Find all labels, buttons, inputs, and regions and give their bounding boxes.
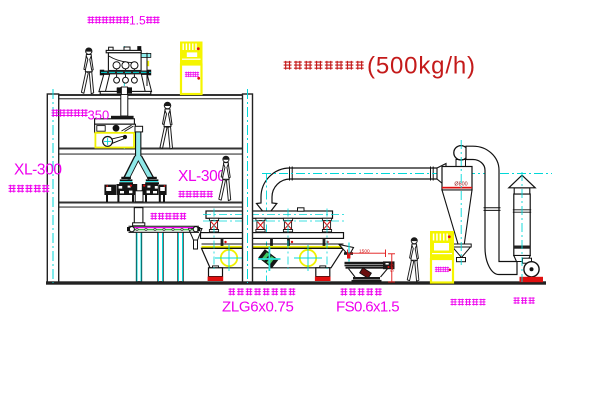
svg-text:1.5: 1.5 xyxy=(129,14,146,28)
svg-text:1500: 1500 xyxy=(359,248,370,254)
svg-text:XL-300: XL-300 xyxy=(14,162,62,179)
svg-text:ZLG6x0.75: ZLG6x0.75 xyxy=(222,299,294,316)
svg-text:545: 545 xyxy=(390,264,396,272)
svg-text:350: 350 xyxy=(88,108,110,123)
svg-text:(500kg/h): (500kg/h) xyxy=(367,53,475,80)
svg-text:XL-300: XL-300 xyxy=(178,168,226,185)
svg-text:FS0.6x1.5: FS0.6x1.5 xyxy=(336,299,399,316)
